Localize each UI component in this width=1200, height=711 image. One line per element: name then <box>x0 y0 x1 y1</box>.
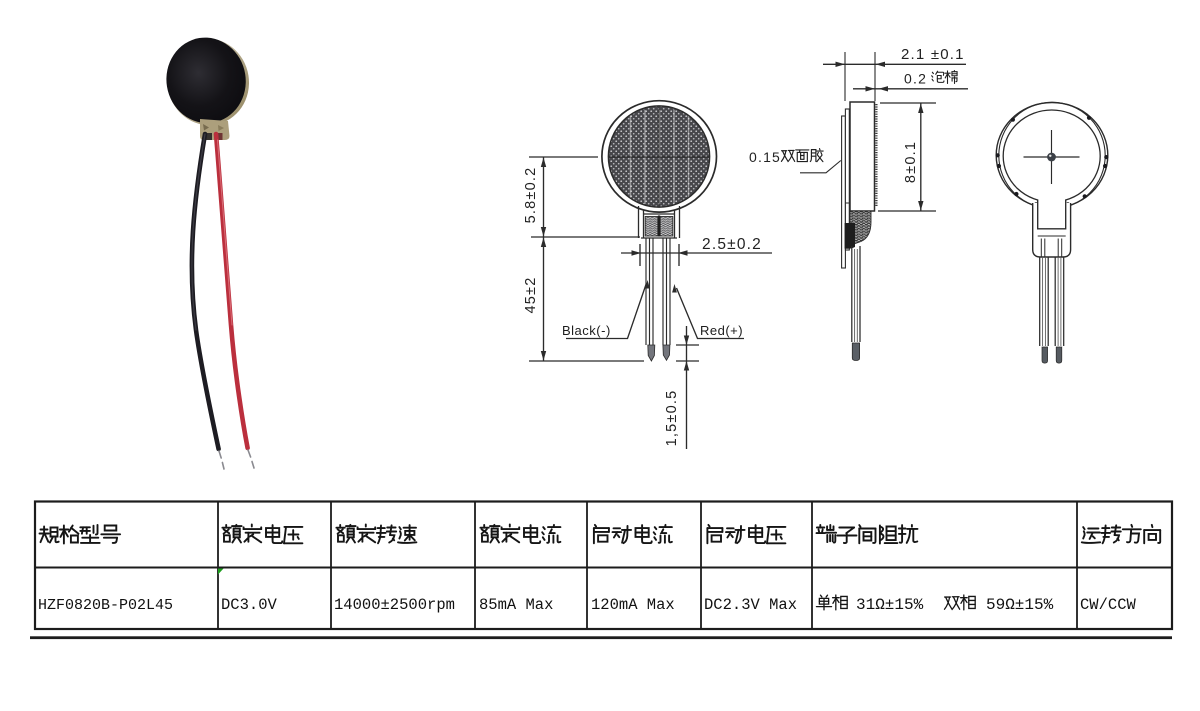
svg-text:CW/CCW: CW/CCW <box>1080 596 1137 614</box>
svg-text:Red(+): Red(+) <box>700 323 743 338</box>
svg-text:DC3.0V: DC3.0V <box>221 596 278 614</box>
svg-text:5.8±0.2: 5.8±0.2 <box>523 167 539 224</box>
svg-text:120mA Max: 120mA Max <box>591 596 675 614</box>
svg-text:1,5±0.5: 1,5±0.5 <box>664 390 680 447</box>
svg-text:2.5±0.2: 2.5±0.2 <box>702 236 762 253</box>
svg-text:14000±2500rpm: 14000±2500rpm <box>334 596 455 614</box>
svg-text:DC2.3V Max: DC2.3V Max <box>704 596 797 614</box>
svg-text:59Ω±15%: 59Ω±15% <box>986 596 1054 614</box>
svg-text:31Ω±15%: 31Ω±15% <box>856 596 924 614</box>
svg-text:45±2: 45±2 <box>523 277 539 314</box>
svg-text:2.1 ±0.1: 2.1 ±0.1 <box>901 46 965 63</box>
svg-text:0.15: 0.15 <box>749 149 781 165</box>
svg-text:Black(-): Black(-) <box>562 323 611 338</box>
svg-text:0.2: 0.2 <box>904 71 927 87</box>
svg-text:HZF0820B-P02L45: HZF0820B-P02L45 <box>38 597 173 614</box>
svg-text:85mA Max: 85mA Max <box>479 596 553 614</box>
svg-text:8±0.1: 8±0.1 <box>903 141 919 183</box>
